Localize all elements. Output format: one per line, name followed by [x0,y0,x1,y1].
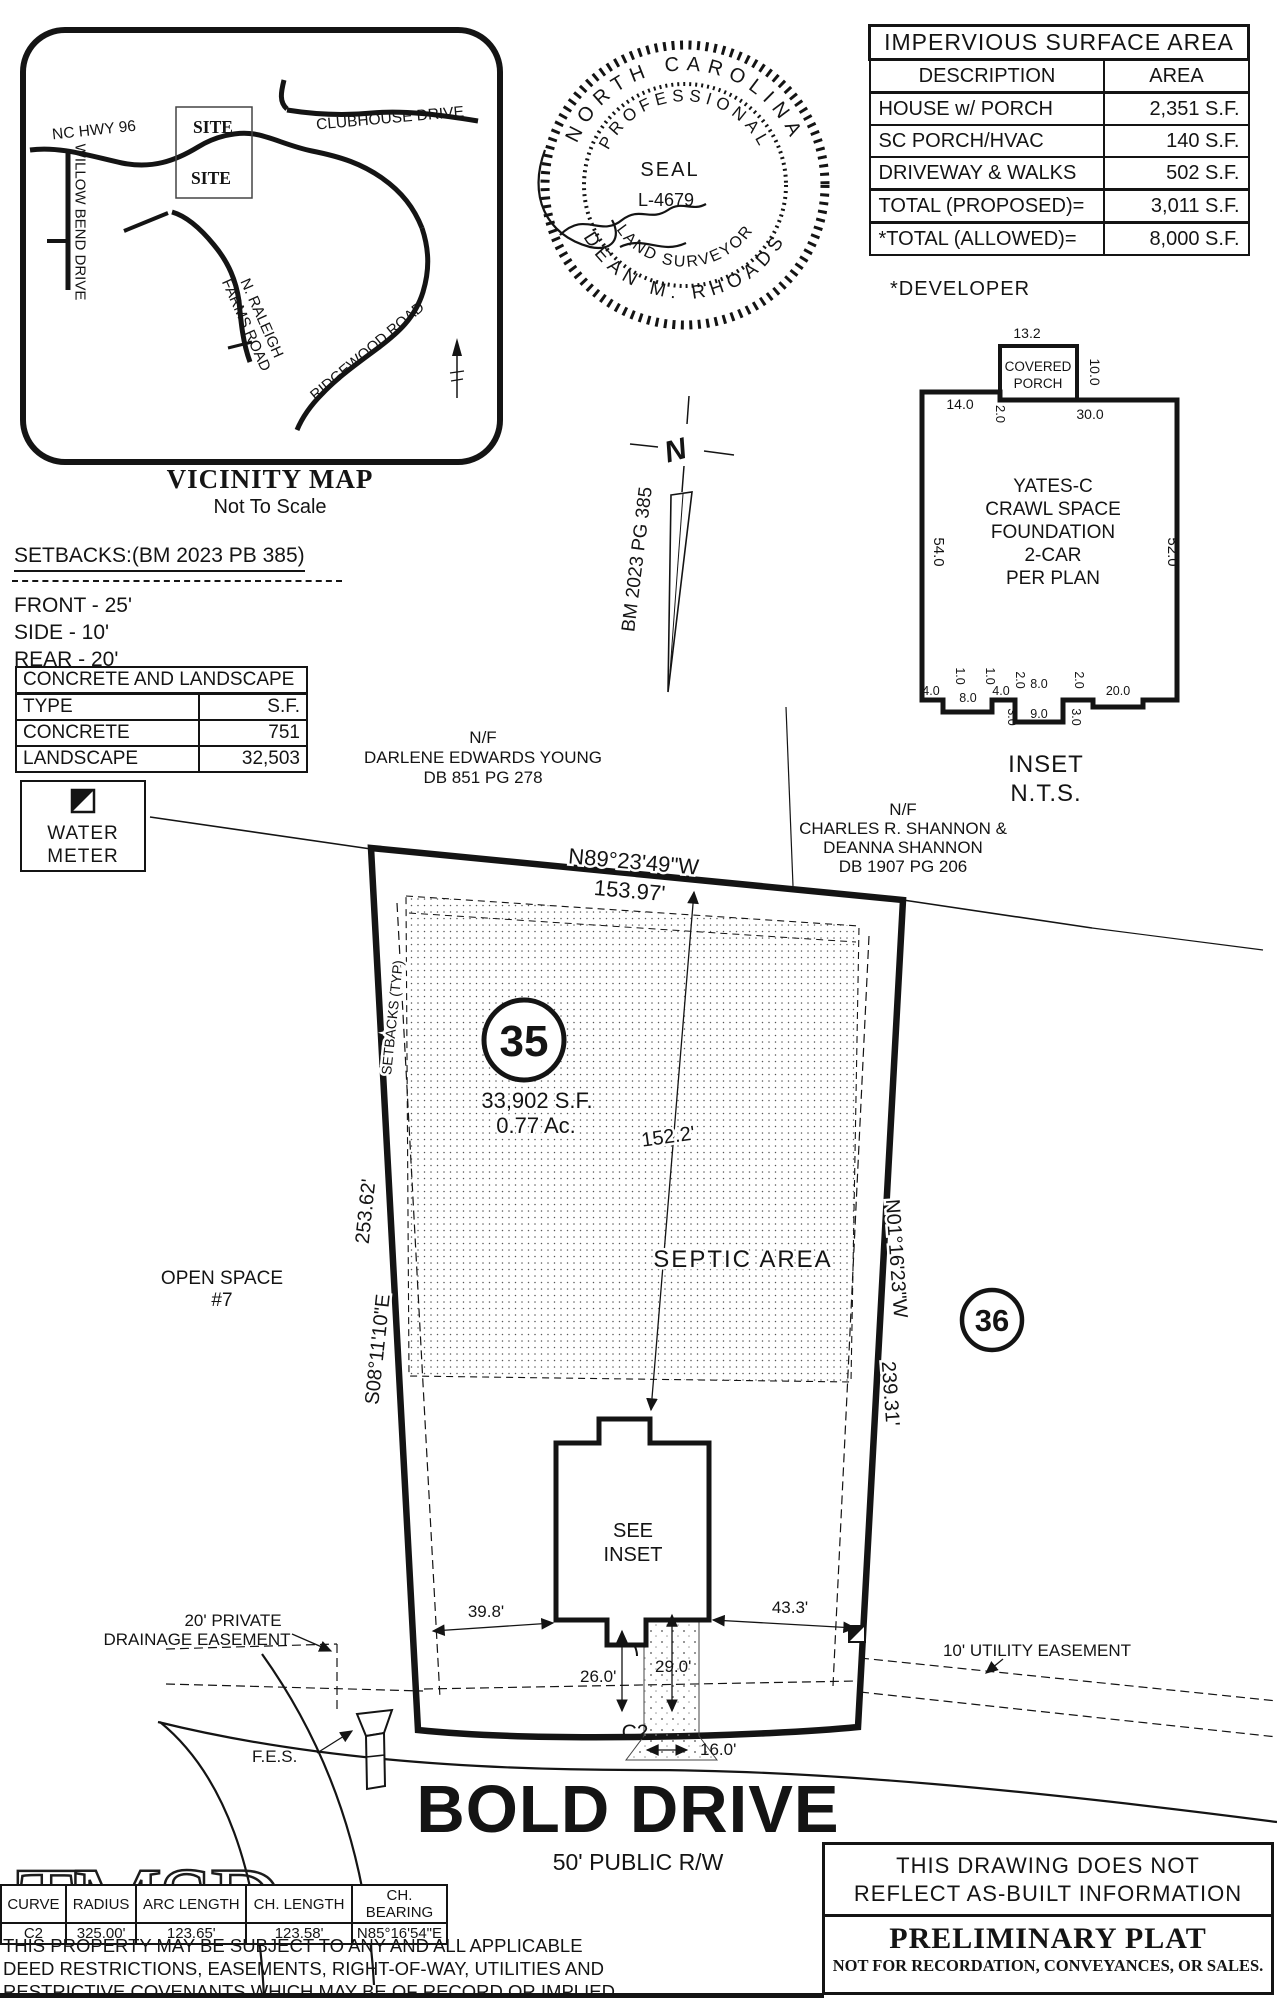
vicinity-subtitle: Not To Scale [213,496,326,518]
impervious-area: 2,351 S.F. [1104,93,1248,126]
concrete-title: CONCRETE AND LANDSCAPE [16,667,307,694]
dim-side-left: 54.0 [930,537,947,566]
concrete-col-type: TYPE [16,694,199,721]
dim-26-0: 26.0' [580,1667,616,1686]
notice-box: THIS DRAWING DOES NOT REFLECT AS-BUILT I… [822,1842,1274,1995]
dim-porch-top: 13.2 [1013,325,1040,341]
impervious-desc: HOUSE w/ PORCH [870,93,1105,126]
house-foundation-2: FOUNDATION [991,522,1115,543]
table-row: LANDSCAPE32,503 [16,746,307,772]
table-row: CURVE RADIUS ARC LENGTH CH. LENGTH CH. B… [1,1885,447,1923]
curve-col: RADIUS [66,1885,136,1923]
concrete-col-sf: S.F. [199,694,307,721]
dim-b6: 2.0 [1013,671,1027,688]
dim-s1: 3.0 [1005,708,1019,725]
fes-symbol [357,1710,392,1789]
svg-text:PROFESSIONAL: PROFESSIONAL [595,86,775,153]
inset-label: INSET [1008,752,1084,779]
impervious-col-desc: DESCRIPTION [870,60,1105,93]
north-arrow-reference: BM 2023 PG 385 [618,486,657,633]
distance-west: 253.62' [352,1178,381,1245]
concrete-value: 751 [199,720,307,746]
house-garage: 2-CAR [1024,545,1081,566]
utility-easement: 10' UTILITY EASEMENT [943,1641,1131,1660]
impervious-area: 3,011 S.F. [1104,190,1248,223]
dim-b8: 2.0 [1072,671,1086,688]
water-meter-icon [68,788,98,816]
table-row: DRIVEWAY & WALKS502 S.F. [870,157,1249,190]
distance-east: 239.31' [877,1360,903,1426]
table-row: TOTAL (PROPOSED)=3,011 S.F. [870,190,1249,223]
adjoiner-lines [150,707,1263,950]
curve-col: CURVE [1,1885,66,1923]
drainage-easement-1: 20' PRIVATE [184,1611,281,1630]
setback-side: SIDE - 10' [14,621,109,645]
neighbor-shannon-deed: DB 1907 PG 206 [839,857,968,876]
drainage-easement-2: DRAINAGE EASEMENT [103,1630,290,1649]
site-label-2: SITE [191,169,231,189]
table-row: HOUSE w/ PORCH2,351 S.F. [870,93,1249,126]
surveyor-seal: NORTH CAROLINA DEAN M. RHOADS PROFESSION… [539,45,825,325]
adjacent-lot-number: 36 [975,1303,1009,1338]
seal-label: SEAL [640,159,699,181]
water-meter-legend: WATER METER [20,780,146,872]
seal-land-surveyor: LAND SURVEYOR [613,222,757,271]
impervious-desc: *TOTAL (ALLOWED)= [870,223,1105,256]
lot-area-ac: 0.77 Ac. [496,1113,576,1138]
water-meter-label-1: WATER [22,823,144,844]
dim-b2: 1.0 [953,667,967,684]
curve-label: C2 [622,1721,649,1745]
bearing-west: S08°11'10"E [361,1293,394,1406]
bottom-border [0,1993,824,1998]
dim-porch-offset: 2.0 [993,405,1008,423]
impervious-col-area: AREA [1104,60,1248,93]
road-label-willow-bend: WILLOW BEND DRIVE [71,144,88,301]
dim-porch-right: 10.0 [1087,358,1103,385]
divider [12,580,342,582]
impervious-area: 8,000 S.F. [1104,223,1248,256]
disclaimer-line-2: DEED RESTRICTIONS, EASEMENTS, RIGHT-OF-W… [3,1959,604,1980]
table-row: *TOTAL (ALLOWED)=8,000 S.F. [870,223,1249,256]
notice-line-1: THIS DRAWING DOES NOT [825,1852,1271,1880]
plat-sheet: NORTH CAROLINA DEAN M. RHOADS PROFESSION… [0,0,1277,2000]
neighbor-shannon-name-1: CHARLES R. SHANNON & [799,819,1007,838]
road-name: BOLD DRIVE [416,1772,839,1847]
septic-area [406,896,859,1382]
dim-b7: 8.0 [1030,677,1047,691]
dim-side-right: 52.0 [1164,537,1181,566]
lot-number: 35 [500,1017,549,1066]
table-row: TYPES.F. [16,694,307,721]
impervious-desc: TOTAL (PROPOSED)= [870,190,1105,223]
impervious-desc: SC PORCH/HVAC [870,125,1105,157]
site-label-1: SITE [193,118,233,138]
setbacks-heading: SETBACKS:(BM 2023 PB 385) [14,544,305,572]
house-per-plan: PER PLAN [1006,568,1100,589]
dim-s2: 3.0 [1069,708,1083,725]
dim-b1: 4.0 [922,684,939,698]
neighbor-young-name: DARLENE EDWARDS YOUNG [364,748,602,767]
dim-stoop: 9.0 [1030,707,1047,721]
septic-area-label: SEPTIC AREA [653,1246,832,1273]
dim-16-0: 16.0' [700,1740,736,1759]
neighbor-shannon-nf: N/F [889,800,916,819]
see-inset-2: INSET [604,1544,663,1566]
distance-north: 153.97' [593,875,666,906]
vicinity-north-arrow [450,338,464,398]
neighbor-young-nf: N/F [469,728,496,747]
inset-house-labels: 13.2 10.0 COVERED PORCH 14.0 2.0 30.0 54… [922,325,1181,726]
neighbor-young-deed: DB 851 PG 278 [423,768,542,787]
dim-b3: 8.0 [959,691,976,705]
curve-col: CH. BEARING [352,1885,447,1923]
table-row: CONCRETE751 [16,720,307,746]
setback-front: FRONT - 25' [14,594,132,618]
dim-top-left: 14.0 [946,396,973,412]
concrete-table: CONCRETE AND LANDSCAPE TYPES.F. CONCRETE… [15,666,308,773]
dim-b4: 1.0 [983,667,997,684]
concrete-type: CONCRETE [16,720,199,746]
impervious-desc: DRIVEWAY & WALKS [870,157,1105,190]
concrete-value: 32,503 [199,746,307,772]
house-foundation-1: CRAWL SPACE [985,499,1121,520]
dim-29-0: 29.0' [655,1657,691,1676]
neighbor-shannon-name-2: DEANNA SHANNON [823,838,983,857]
north-arrow-n: N [661,432,692,470]
impervious-area: 140 S.F. [1104,125,1248,157]
open-space-label: OPEN SPACE [161,1268,283,1289]
impervious-table: IMPERVIOUS SURFACE AREA DESCRIPTIONAREA … [868,24,1250,256]
vicinity-map [23,30,500,462]
preliminary-plat-subtitle: NOT FOR RECORDATION, CONVEYANCES, OR SAL… [825,1956,1271,1976]
lot-area-sf: 33,902 S.F. [481,1088,592,1113]
porch-label-1: COVERED [1005,359,1072,374]
concrete-type: LANDSCAPE [16,746,199,772]
road-rw: 50' PUBLIC R/W [553,1850,724,1876]
fes-label: F.E.S. [252,1747,297,1766]
dim-43-3: 43.3' [772,1598,808,1617]
curve-col: CH. LENGTH [246,1885,352,1923]
notice-line-2: REFLECT AS-BUILT INFORMATION [825,1880,1271,1908]
open-space-number: #7 [211,1290,232,1311]
water-meter-label-2: METER [22,846,144,867]
house-model: YATES-C [1013,476,1093,497]
plat-linework: NORTH CAROLINA DEAN M. RHOADS PROFESSION… [0,0,1277,2000]
svg-text:LAND SURVEYOR: LAND SURVEYOR [613,222,757,271]
inset-nts: N.T.S. [1010,781,1081,808]
bearing-east: N01°16'23"W [881,1198,911,1318]
disclaimer-line-1: THIS PROPERTY MAY BE SUBJECT TO ANY AND … [3,1936,583,1957]
dim-39-8: 39.8' [468,1602,504,1621]
see-inset-1: SEE [613,1520,653,1542]
developer-footnote: *DEVELOPER [890,278,1030,300]
dim-b9: 20.0 [1106,684,1130,698]
dim-top-right: 30.0 [1076,406,1103,422]
impervious-area: 502 S.F. [1104,157,1248,190]
table-row: SC PORCH/HVAC140 S.F. [870,125,1249,157]
porch-label-2: PORCH [1014,376,1063,391]
dim-b5: 4.0 [992,684,1009,698]
preliminary-plat-title: PRELIMINARY PLAT [825,1922,1271,1956]
seal-professional: PROFESSIONAL [595,86,775,153]
vicinity-title: VICINITY MAP [167,464,374,494]
impervious-title: IMPERVIOUS SURFACE AREA [870,26,1249,60]
curve-col: ARC LENGTH [136,1885,246,1923]
